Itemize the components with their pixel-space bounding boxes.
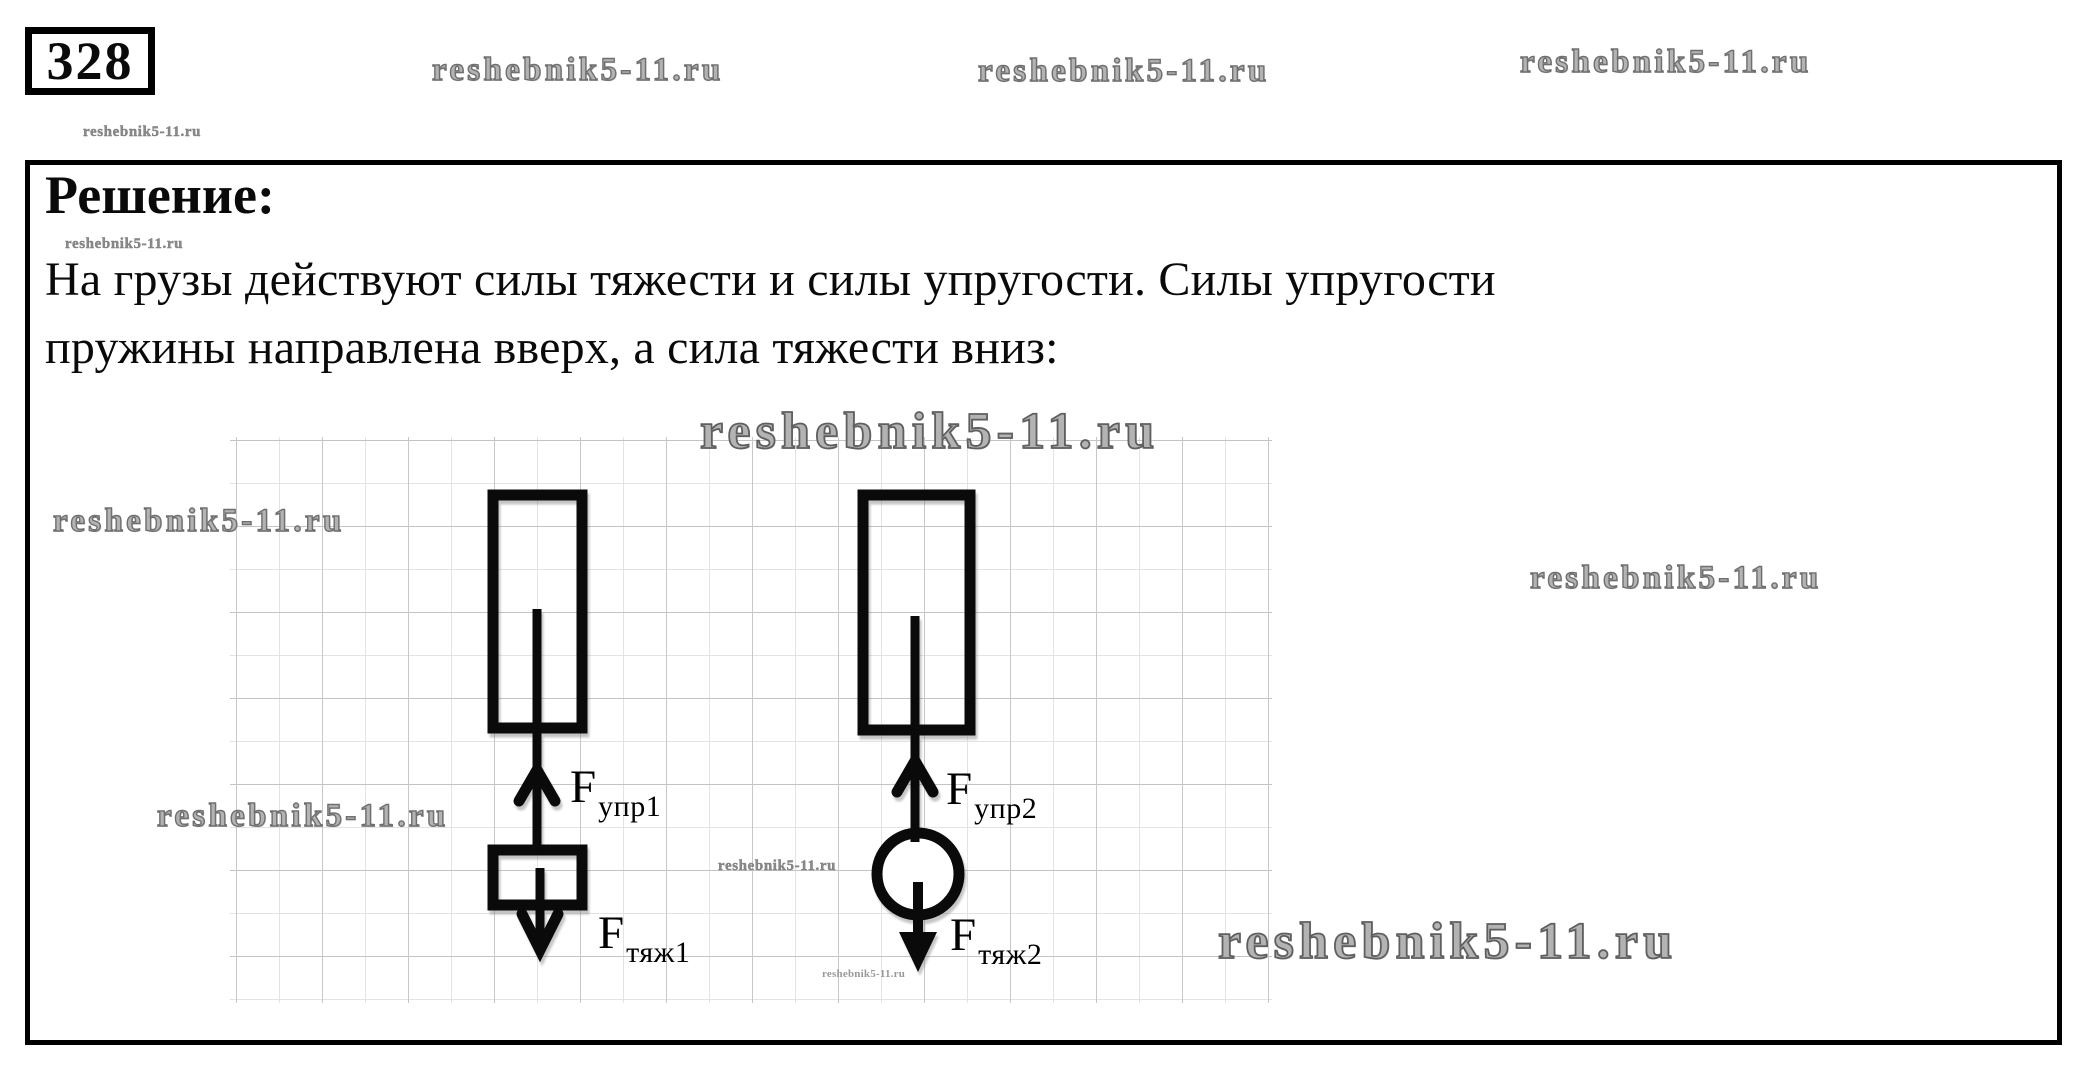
force-label-upr2: Fупр2 <box>946 762 1037 816</box>
problem-number-box: 328 <box>25 27 155 95</box>
watermark: reshebnik5-11.ru <box>157 798 449 835</box>
watermark: reshebnik5-11.ru <box>1530 560 1822 597</box>
force-subscript: упр1 <box>598 790 661 823</box>
solution-text-line-2: пружины направлена вверх, а сила тяжести… <box>45 320 1059 375</box>
force-symbol: F <box>946 763 972 815</box>
watermark: reshebnik5-11.ru <box>53 503 345 540</box>
watermark: reshebnik5-11.ru <box>65 236 183 253</box>
watermark: reshebnik5-11.ru <box>1218 912 1677 971</box>
watermark: reshebnik5-11.ru <box>822 968 905 980</box>
watermark: reshebnik5-11.ru <box>83 124 201 141</box>
watermark: reshebnik5-11.ru <box>432 52 724 89</box>
force-label-tyazh1: Fтяж1 <box>598 906 690 960</box>
scanned-solution-page: 328 reshebnik5-11.ru reshebnik5-11.ru re… <box>0 0 2088 1067</box>
force-symbol: F <box>598 907 624 959</box>
force-subscript: упр2 <box>974 792 1037 825</box>
force-label-tyazh2: Fтяж2 <box>950 908 1042 962</box>
graph-paper <box>230 437 1272 1003</box>
solution-text-line-1: На грузы действуют силы тяжести и силы у… <box>45 252 1496 307</box>
force-subscript: тяж2 <box>978 938 1042 971</box>
solution-heading: Решение: <box>45 164 275 226</box>
watermark: reshebnik5-11.ru <box>978 53 1270 90</box>
watermark: reshebnik5-11.ru <box>700 402 1159 461</box>
force-symbol: F <box>570 761 596 813</box>
problem-number: 328 <box>47 30 134 92</box>
force-subscript: тяж1 <box>626 936 690 969</box>
watermark: reshebnik5-11.ru <box>718 858 836 875</box>
watermark: reshebnik5-11.ru <box>1520 44 1812 81</box>
force-symbol: F <box>950 909 976 961</box>
force-label-upr1: Fупр1 <box>570 760 661 814</box>
